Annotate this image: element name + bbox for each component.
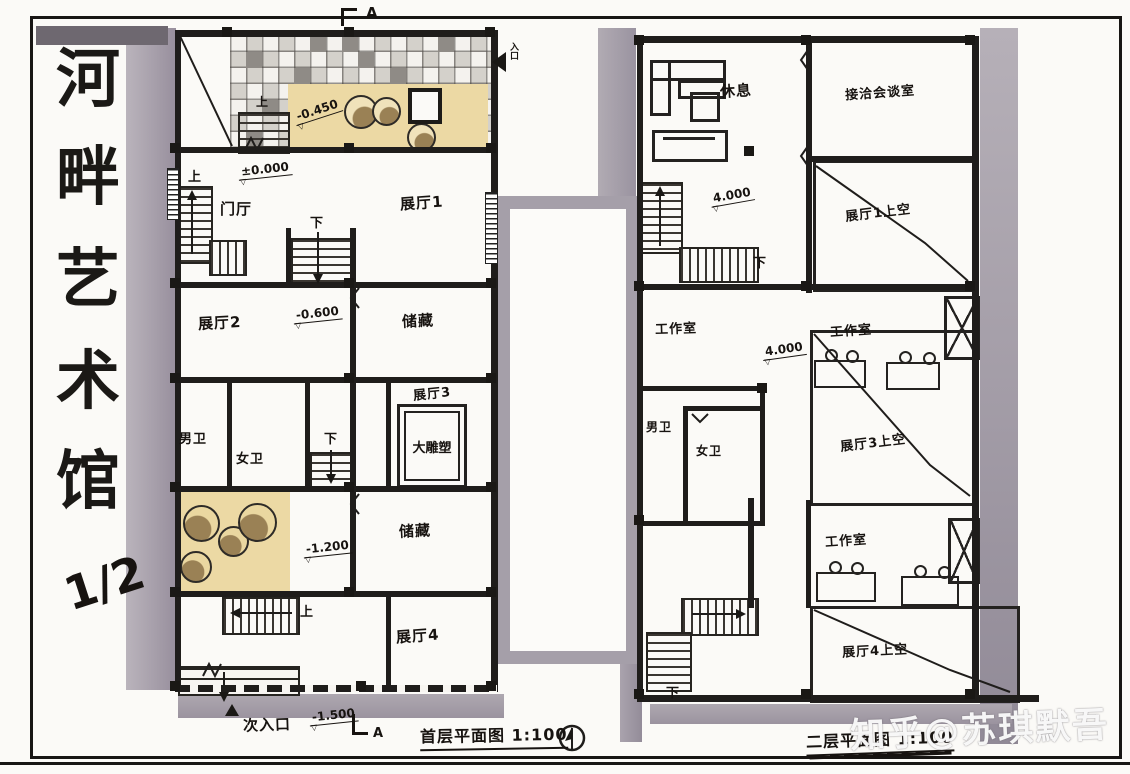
title-char: 河 [56, 48, 120, 112]
room-label-mens-wc: 男卫 [179, 428, 207, 447]
stair-up-label: 上 [300, 601, 314, 620]
wall-segment [972, 36, 979, 702]
section-mark-top [341, 8, 357, 26]
tree [183, 505, 220, 542]
wall-segment [748, 498, 754, 608]
room-label-studio3: 工作室 [824, 529, 867, 551]
sculpture-label: 大雕塑 [404, 411, 460, 481]
room-label-studio2: 工作室 [829, 319, 872, 341]
sculpture-pedestal: 大雕塑 [397, 404, 467, 488]
wall-segment [637, 386, 767, 391]
sofa [650, 60, 671, 116]
wall-segment [175, 486, 497, 492]
wall-segment [305, 377, 310, 492]
scanned-floorplan-sheet: { "artwork_title": { "name": "河畔艺术馆", "c… [0, 0, 1130, 774]
title-char: 畔 [56, 146, 120, 210]
entry-hall-stair-flight [177, 186, 213, 264]
wall-segment [809, 156, 975, 162]
tree [238, 503, 277, 542]
wall-segment [227, 377, 232, 492]
room-label-exhibit3: 展厅3 [412, 381, 452, 404]
stair-down-label: 下 [324, 428, 338, 447]
stair-down-2 [310, 452, 354, 490]
square-table [408, 88, 442, 124]
wall-segment [806, 500, 811, 608]
chair [851, 562, 864, 575]
work-desk [816, 572, 876, 602]
chair [829, 561, 842, 574]
bench [652, 130, 728, 162]
section-mark-bottom [352, 714, 368, 735]
coffee-table [690, 92, 720, 122]
chair [899, 351, 912, 364]
wall-segment [386, 591, 391, 691]
room-label-storage2: 储藏 [398, 519, 431, 542]
reflecting-court-between-wings [497, 196, 639, 664]
room-label-exhibit1: 展厅1 [399, 191, 444, 215]
wall-segment [806, 36, 812, 293]
wall-segment [683, 406, 763, 411]
room-label-womens-wc: 女卫 [236, 448, 264, 467]
wall-segment [637, 521, 765, 526]
bench-line [663, 137, 715, 140]
stair-down-1 [291, 238, 353, 288]
room-label-womens-wc: 女卫 [696, 442, 722, 459]
floor1-caption: 首层平面图 1:100 [420, 721, 568, 752]
stair-down-label: 下 [753, 252, 767, 271]
entry-hall-stair-flight [209, 240, 247, 276]
wall-segment [637, 36, 643, 702]
wall-segment [286, 228, 291, 288]
secondary-entrance-label: 次入口 [243, 713, 292, 736]
stair-down-upper [641, 182, 683, 254]
wall-segment [175, 591, 497, 597]
main-entrance-label: 入口 [507, 42, 520, 60]
section-mark-top-label: A [366, 4, 379, 22]
sheet-border-bottom-line [0, 762, 1130, 765]
stair-up-2 [222, 597, 300, 635]
stair-down-label: 下 [666, 682, 680, 701]
wall-segment [386, 377, 391, 492]
wall-segment [175, 147, 497, 153]
window [485, 192, 498, 264]
stair-down-upper [679, 247, 759, 283]
section-mark-bottom-label: A [373, 726, 384, 741]
round-table [372, 97, 401, 126]
tree [180, 551, 212, 583]
room-label-exhibit2: 展厅2 [197, 311, 241, 334]
void-over-exhibit1 [813, 160, 977, 292]
wall-segment [637, 695, 1039, 702]
stair-up-label: 上 [188, 166, 202, 185]
wall-segment [175, 30, 497, 37]
room-label-storage1: 储藏 [401, 309, 434, 332]
wall-segment [175, 282, 497, 288]
stair-up-label: 上 [256, 93, 269, 110]
chair [923, 352, 936, 365]
room-label-lounge: 休息 [719, 79, 752, 102]
room-label-studio1: 工作室 [655, 317, 698, 337]
wall-segment [175, 685, 498, 692]
room-label-mens-wc: 男卫 [646, 418, 672, 435]
work-desk [886, 362, 940, 390]
chair [914, 565, 927, 578]
title-char: 艺 [56, 248, 120, 312]
title-char: 馆 [56, 450, 120, 514]
wall-segment [637, 284, 978, 290]
room-label-exhibit4: 展厅4 [395, 624, 440, 648]
stair-down-label: 下 [310, 212, 324, 231]
chair [846, 350, 859, 363]
wall-segment [683, 406, 688, 524]
marker-band-gap-top [598, 28, 636, 218]
work-desk [814, 360, 866, 388]
void-label-exhibit4: 展厅4上空 [842, 638, 909, 660]
title-char: 术 [56, 350, 120, 414]
window [167, 168, 179, 220]
room-label-entry-hall: 门厅 [220, 198, 252, 219]
chair [825, 349, 838, 362]
